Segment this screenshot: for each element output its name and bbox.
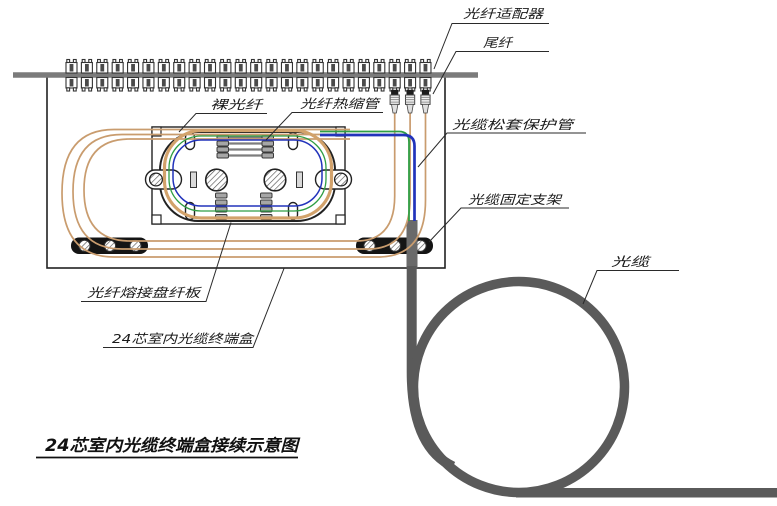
optical-cable — [407, 220, 777, 493]
diagram-title-text: 24芯室内光缆终端盒接续示意图 — [45, 436, 301, 455]
label-termination-box: 24芯室内光缆终端盒 — [103, 269, 284, 348]
fc-pigtail-connector — [390, 90, 399, 113]
cable-coil — [414, 282, 625, 493]
label-pigtail: 尾纤 — [433, 35, 549, 94]
schematic-page: 光纤适配器 尾纤 裸光纤 光纤热缩管 光缆松套保护管 光缆固定支架 光缆 光纤熔… — [0, 0, 777, 506]
label-adapter-text: 光纤适配器 — [463, 6, 545, 21]
termination-box-schematic: 光纤适配器 尾纤 裸光纤 光纤热缩管 光缆松套保护管 光缆固定支架 光缆 光纤熔… — [0, 0, 777, 506]
tray-screw-right — [264, 169, 286, 191]
label-cable: 光缆 — [583, 254, 679, 304]
fc-pigtail-connector — [405, 90, 414, 113]
pigtail-connectors — [390, 90, 430, 113]
tray-post-right — [297, 172, 303, 188]
label-bare-fiber-text: 裸光纤 — [210, 97, 264, 112]
tray-post-left — [191, 172, 197, 188]
label-loose-tube: 光缆松套保护管 — [418, 117, 586, 167]
label-loose-tube-text: 光缆松套保护管 — [452, 117, 576, 132]
label-heat-shrink-text: 光纤热缩管 — [300, 96, 382, 111]
diagram-title: 24芯室内光缆终端盒接续示意图 — [36, 436, 301, 458]
label-pigtail-text: 尾纤 — [483, 35, 514, 50]
tray-screw-left — [206, 169, 228, 191]
cable-fixing-bracket-left — [71, 238, 148, 255]
label-termination-box-text: 24芯室内光缆终端盒 — [112, 331, 255, 346]
fc-pigtail-connector — [421, 90, 430, 113]
label-splice-tray-text: 光纤熔接盘纤板 — [87, 285, 202, 300]
label-cable-text: 光缆 — [611, 254, 653, 269]
label-fix-bracket: 光缆固定支架 — [429, 192, 569, 242]
label-fix-bracket-text: 光缆固定支架 — [468, 192, 563, 207]
